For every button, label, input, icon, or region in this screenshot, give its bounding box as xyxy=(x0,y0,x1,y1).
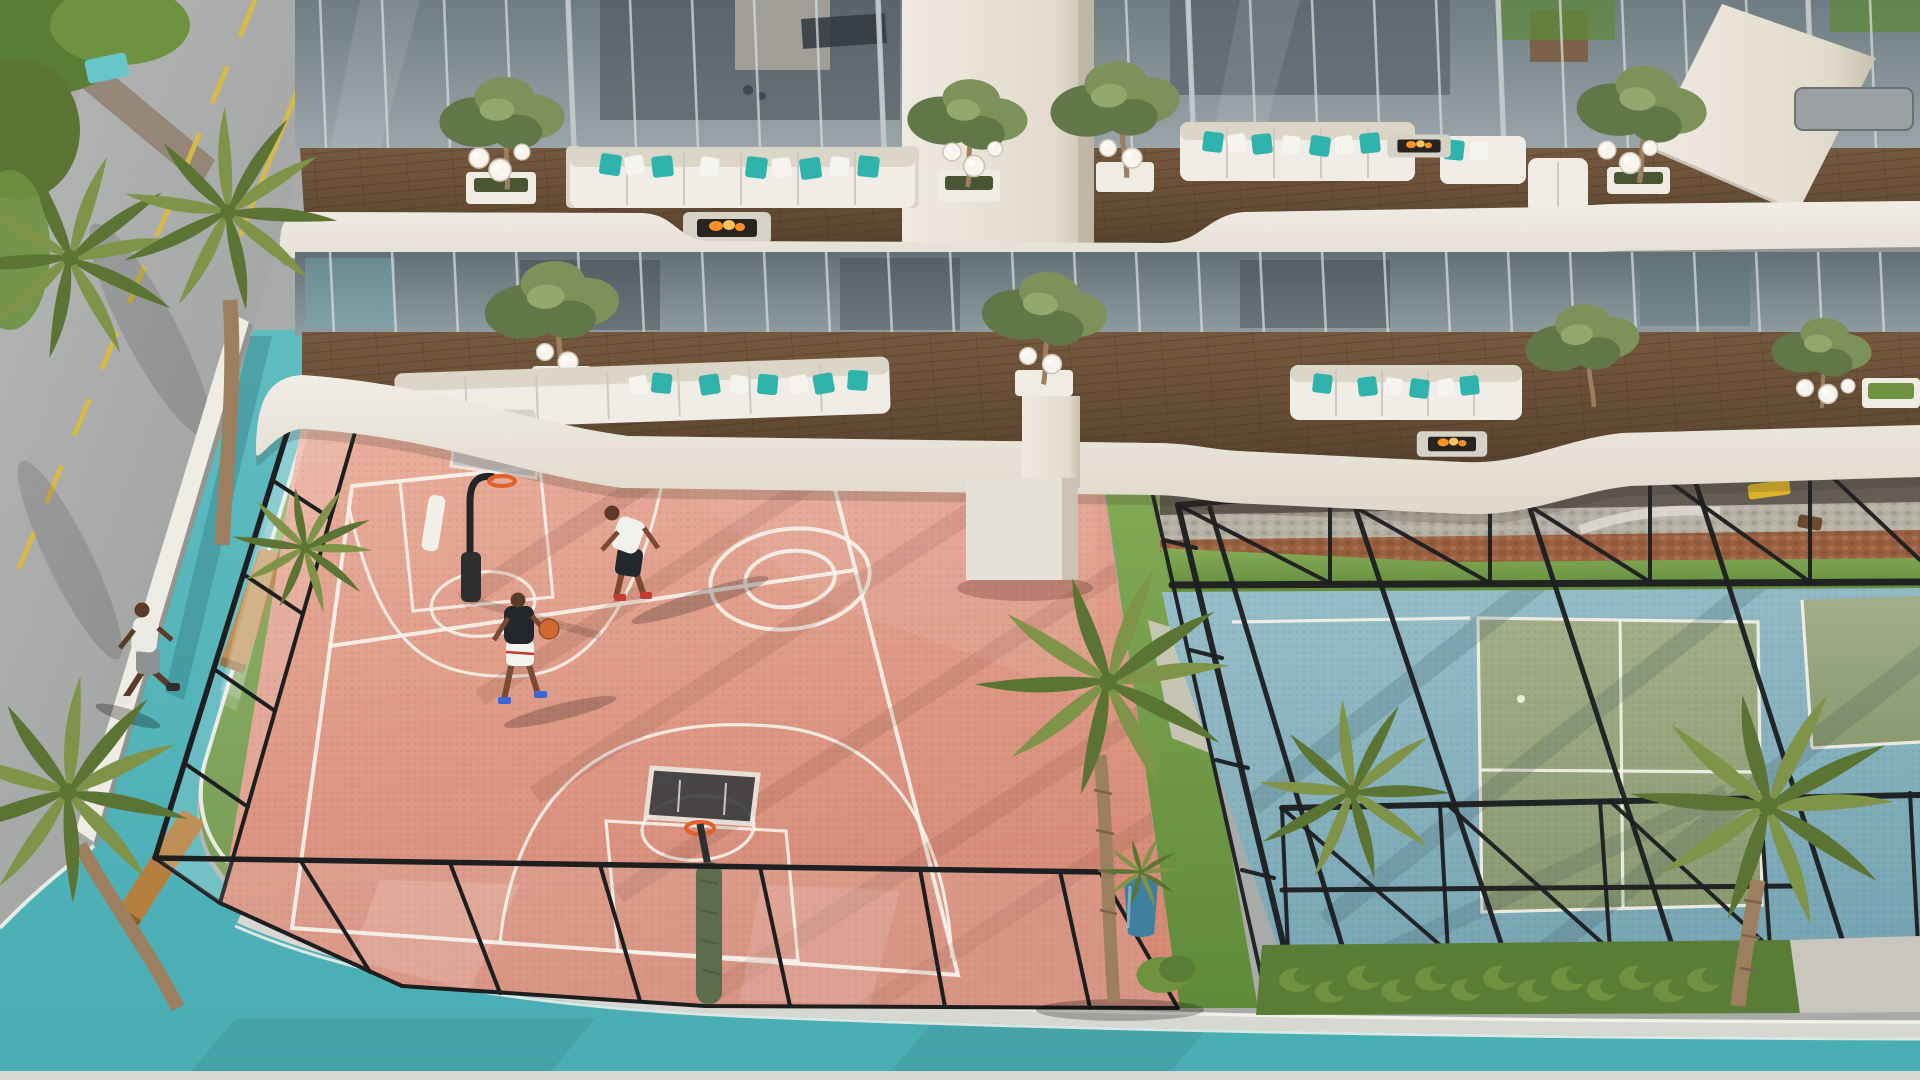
interior-furniture xyxy=(801,13,887,49)
outdoor-bench-far-right xyxy=(1795,88,1913,130)
armchair-right xyxy=(1528,158,1588,214)
scene-architectural-render xyxy=(0,0,1920,1080)
bottom-curb xyxy=(0,1071,1920,1080)
sofa-1 xyxy=(566,146,919,208)
basketball xyxy=(539,619,559,639)
sofa-5 xyxy=(1290,365,1522,420)
render-canvas xyxy=(0,0,1920,1080)
fire-table-4 xyxy=(1417,431,1487,457)
fire-table-2 xyxy=(1387,134,1450,157)
padel-ball xyxy=(1517,695,1525,703)
